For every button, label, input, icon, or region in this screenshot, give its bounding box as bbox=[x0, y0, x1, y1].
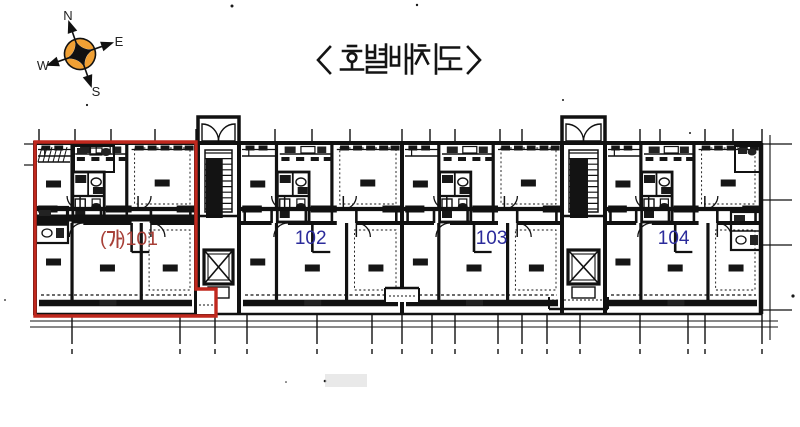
svg-text:N: N bbox=[63, 8, 72, 23]
svg-text:104: 104 bbox=[658, 228, 690, 249]
svg-text:103: 103 bbox=[476, 228, 508, 249]
svg-text:S: S bbox=[92, 84, 101, 99]
svg-text:)101: )101 bbox=[119, 228, 158, 250]
svg-text:(: ( bbox=[100, 228, 107, 250]
svg-text:102: 102 bbox=[295, 228, 327, 249]
svg-text:E: E bbox=[115, 34, 124, 49]
svg-text:W: W bbox=[37, 58, 50, 73]
